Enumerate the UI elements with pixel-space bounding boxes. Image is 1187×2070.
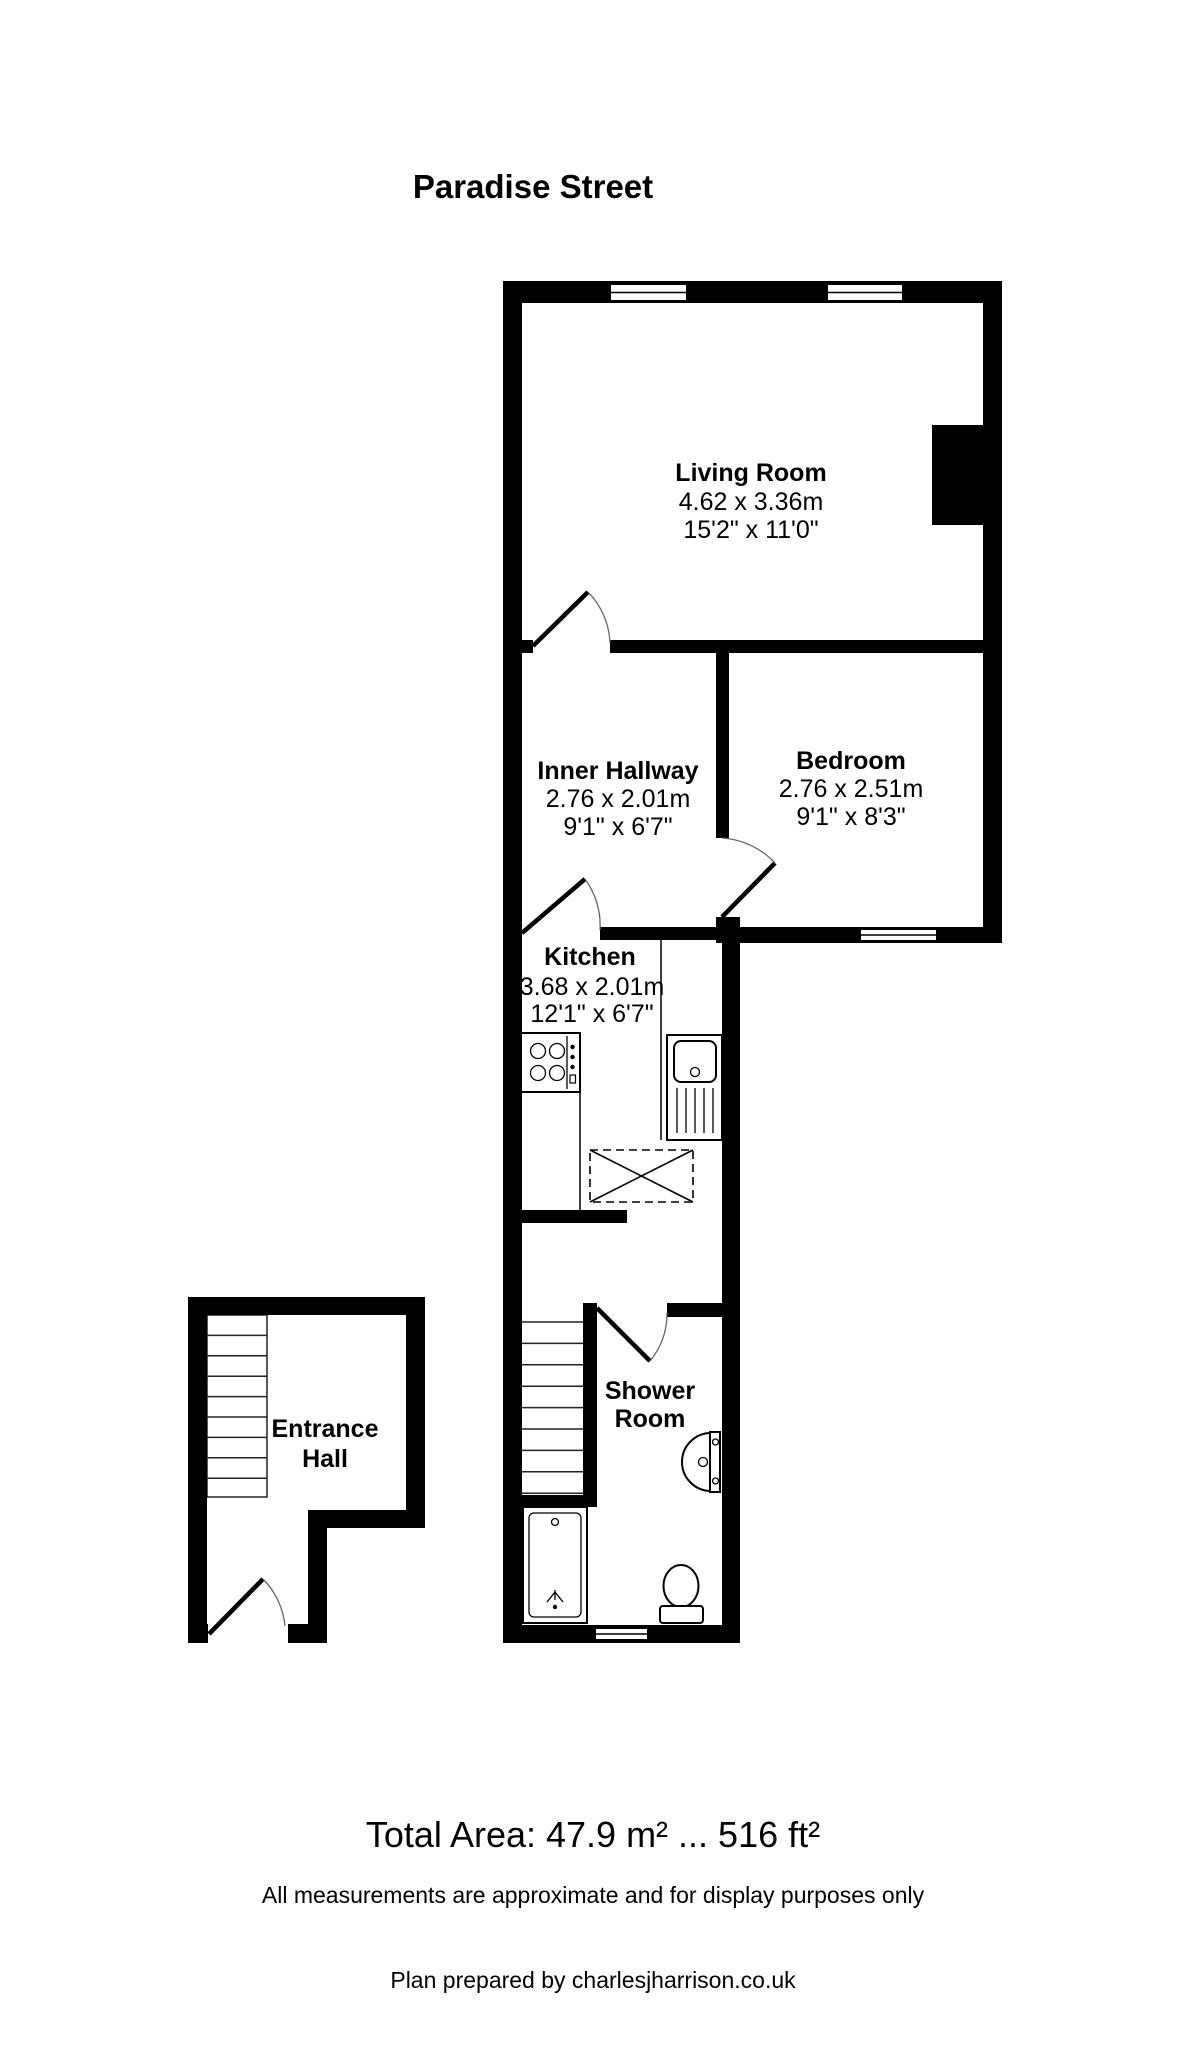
label-kitchen: Kitchen xyxy=(544,943,636,971)
kitchen-hob xyxy=(521,1033,580,1092)
window-shower-room xyxy=(595,1628,648,1640)
wall-top xyxy=(503,281,1002,303)
wall-shower-stairs-bottom xyxy=(521,1495,597,1507)
door-kitchen xyxy=(522,879,600,933)
window-bedroom xyxy=(860,929,937,941)
door-livingroom xyxy=(533,592,610,646)
wall-right-main xyxy=(983,281,1002,943)
dims-hallway-imperial: 9'1" x 6'7" xyxy=(563,813,672,841)
wall-entrance-bottom-left xyxy=(188,1624,208,1643)
floorplan-drawing: Paradise Street xyxy=(0,0,1187,2070)
wall-left-main xyxy=(503,281,522,1643)
window-livingroom-right xyxy=(827,284,903,301)
wall-livingroom-door-stub xyxy=(522,640,533,653)
dims-kitchen-metric: 3.68 x 2.01m xyxy=(520,973,665,1001)
window-livingroom-left xyxy=(610,284,687,301)
label-entrance-hall-line2: Hall xyxy=(302,1445,348,1473)
shower-tray xyxy=(523,1507,587,1623)
kitchen-table xyxy=(590,1150,693,1202)
staircase-shower xyxy=(521,1322,583,1493)
door-bedroom xyxy=(722,838,775,917)
wall-livingroom-bottom xyxy=(610,640,1002,653)
shower-room-fixtures xyxy=(521,1322,720,1623)
wall-entrance-left xyxy=(188,1297,207,1643)
wall-entrance-bottom-right xyxy=(288,1624,327,1643)
label-entrance-hall-line1: Entrance xyxy=(272,1415,379,1443)
wash-basin xyxy=(682,1432,720,1492)
dims-living-metric: 4.62 x 3.36m xyxy=(679,488,824,516)
kitchen-sink xyxy=(667,1035,722,1140)
label-bedroom: Bedroom xyxy=(796,747,906,775)
total-area-text: Total Area: 47.9 m² ... 516 ft² xyxy=(366,1814,820,1855)
wall-hall-bedroom-divider xyxy=(716,646,729,838)
wall-entrance-step-v xyxy=(308,1510,327,1643)
dims-kitchen-imperial: 12'1" x 6'7" xyxy=(530,1000,653,1028)
dims-hallway-metric: 2.76 x 2.01m xyxy=(546,785,691,813)
shower-head-icon xyxy=(553,1605,557,1609)
dims-bedroom-metric: 2.76 x 2.51m xyxy=(779,775,924,803)
label-inner-hallway: Inner Hallway xyxy=(537,757,698,785)
wall-column-right xyxy=(722,917,740,1643)
staircase-entrance xyxy=(207,1315,267,1497)
floorplan-page: Paradise Street xyxy=(0,0,1187,2070)
wall-entrance-top xyxy=(188,1297,425,1315)
toilet xyxy=(660,1565,703,1623)
door-entrance xyxy=(209,1579,285,1634)
wall-kitchen-bottom-stub xyxy=(503,1210,627,1223)
label-shower-room-line1: Shower xyxy=(605,1377,696,1405)
wall-shower-top-stub xyxy=(667,1303,740,1317)
dims-bedroom-imperial: 9'1" x 8'3" xyxy=(796,803,905,831)
label-living-room: Living Room xyxy=(675,459,826,487)
credit-text: Plan prepared by charlesjharrison.co.uk xyxy=(390,1967,796,1993)
disclaimer-text: All measurements are approximate and for… xyxy=(262,1882,925,1908)
wall-shower-stairs-side xyxy=(583,1303,597,1507)
wall-entrance-right xyxy=(406,1297,425,1528)
footer: Total Area: 47.9 m² ... 516 ft² All meas… xyxy=(262,1814,925,1993)
dims-living-imperial: 15'2" x 11'0" xyxy=(683,516,818,544)
plan-title: Paradise Street xyxy=(413,168,653,205)
door-shower-room xyxy=(597,1308,667,1361)
chimney-breast xyxy=(932,425,983,525)
label-shower-room-line2: Room xyxy=(615,1405,686,1433)
room-labels: Living Room 4.62 x 3.36m 15'2" x 11'0" I… xyxy=(272,459,924,1473)
